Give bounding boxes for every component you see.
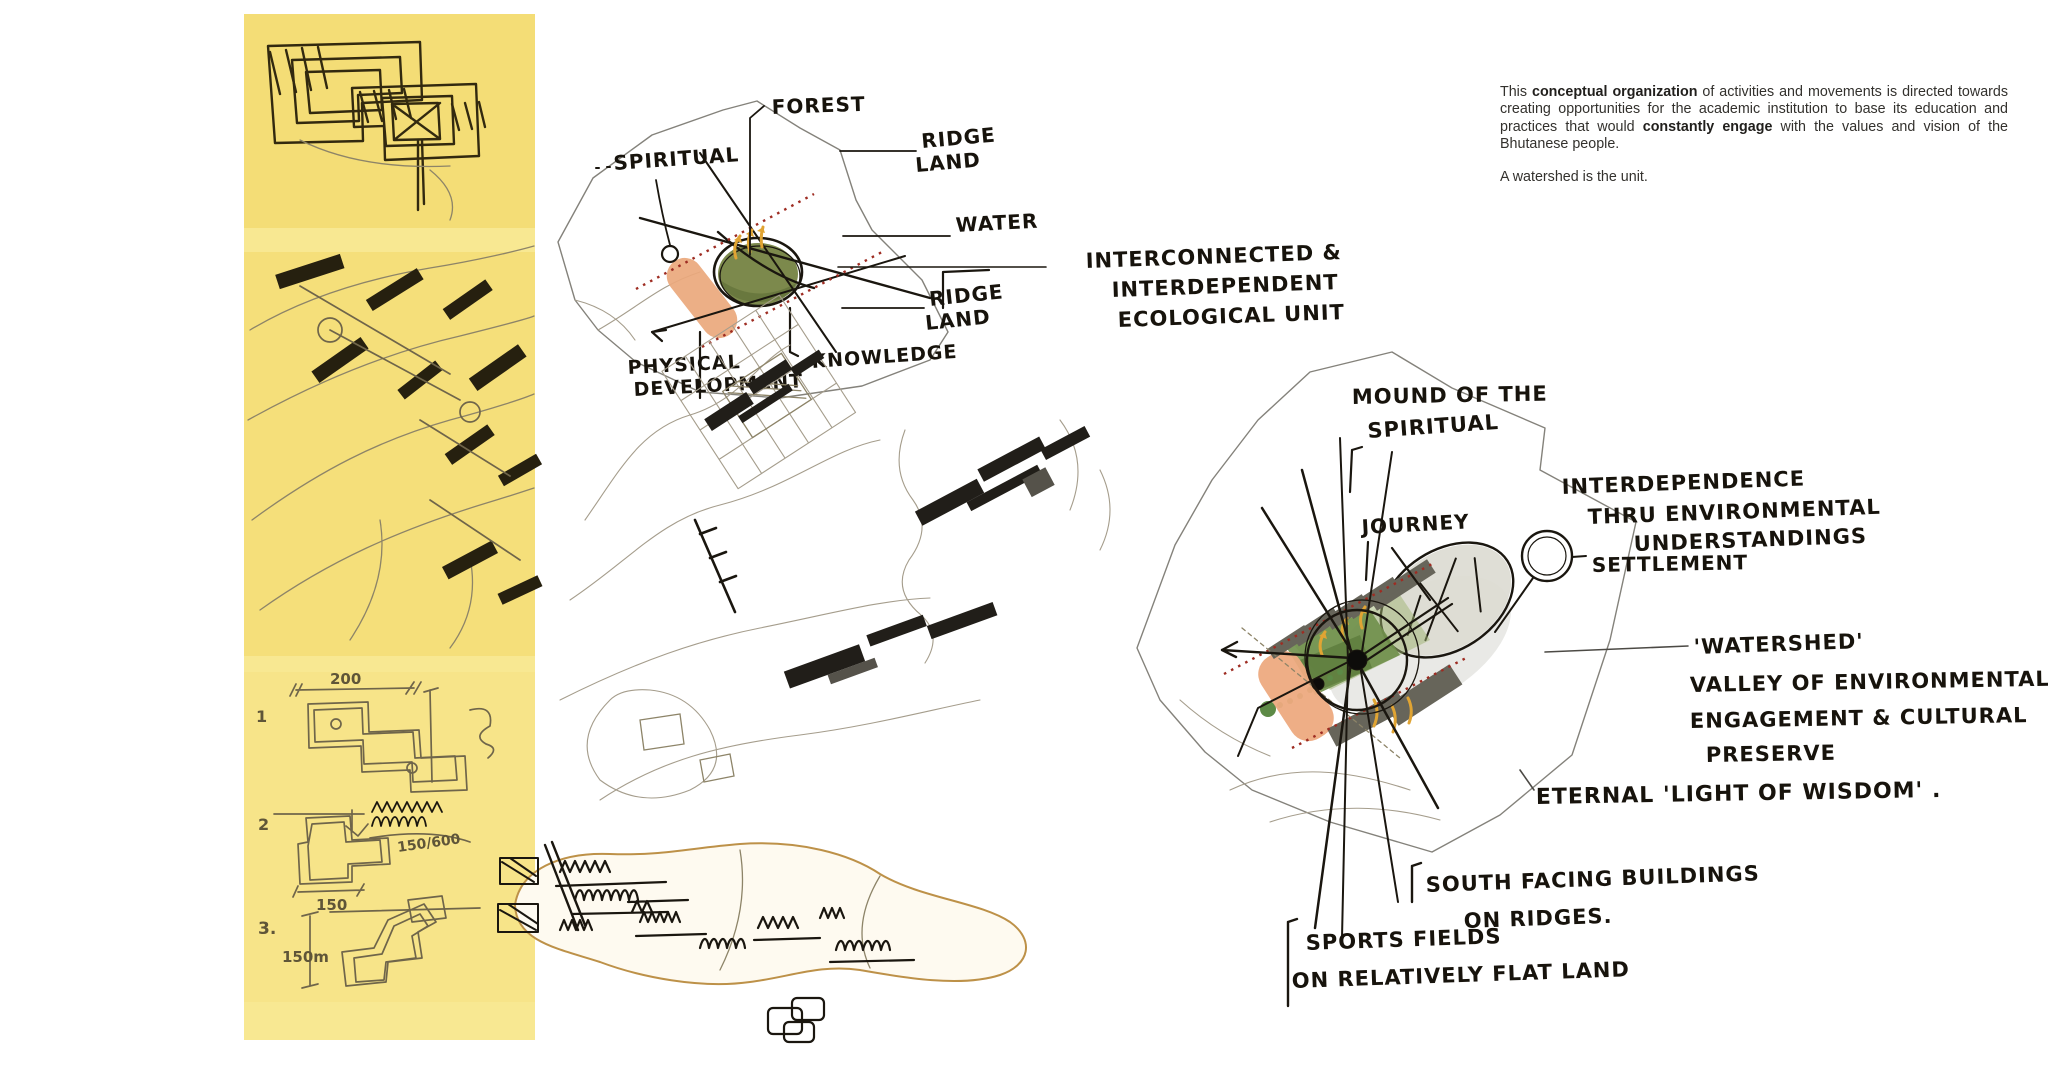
stair-path	[695, 520, 736, 612]
settlement-node	[1522, 531, 1572, 581]
label-south-facing-1: SOUTH FACING BUILDINGS	[1425, 861, 1760, 897]
label-eco-unit-3: ECOLOGICAL UNIT	[1117, 300, 1345, 332]
concept-statement: This conceptual organization of activiti…	[1500, 84, 2008, 201]
label-knowledge: KNOWLEDGE	[811, 341, 958, 373]
label-interdependence-2: THRU ENVIRONMENTAL	[1587, 495, 1881, 529]
linear-settlement-sketch	[498, 842, 1026, 1042]
label-eco-unit-1: INTERCONNECTED &	[1085, 240, 1342, 273]
watershed-valley-diagram: MOUND OF THE SPIRITUAL JOURNEY INTERDEPE…	[1137, 352, 2048, 1006]
footprint-doodle	[768, 998, 824, 1042]
label-interdependence-1: INTERDEPENDENCE	[1561, 467, 1805, 499]
label-eternal: ETERNAL 'LIGHT OF WISDOM' .	[1536, 778, 1942, 810]
dim-200: 200	[330, 670, 361, 688]
num-3: 3.	[258, 919, 276, 939]
label-watershed-2: VALLEY OF ENVIRONMENTAL	[1690, 667, 2048, 697]
concept-p1-seg1: This	[1500, 84, 1532, 100]
label-settlement: SETTLEMENT	[1592, 550, 1749, 577]
spiritual-leader-line	[656, 180, 670, 245]
spiritual-node	[662, 246, 678, 262]
forest-mound	[714, 238, 802, 306]
num-2: 2	[258, 815, 269, 834]
building-cluster-lower	[782, 591, 1000, 698]
label-spiritual: SPIRITUAL	[613, 142, 740, 175]
concept-p1-bold1: conceptual organization	[1532, 84, 1697, 100]
concept-paragraph: This conceptual organization of activiti…	[1500, 84, 2008, 154]
label-sports-fields-2: ON RELATIVELY FLAT LAND	[1291, 957, 1630, 993]
watershed-unit-diagram: FOREST SPIRITUAL RIDGE LAND WATER INTERC…	[558, 92, 1345, 401]
num-1: 1	[256, 707, 267, 726]
label-watershed-3: ENGAGEMENT & CULTURAL	[1690, 703, 2028, 733]
building-cluster-right	[911, 415, 1102, 548]
dim-150m: 150m	[282, 948, 329, 966]
label-forest: FOREST	[771, 92, 866, 119]
label-water: WATER	[955, 209, 1039, 237]
watershed-unit-statement: A watershed is the unit.	[1500, 169, 2008, 186]
label-sports-fields-1: SPORTS FIELDS	[1305, 924, 1502, 955]
label-watershed-1: 'WATERSHED'	[1693, 629, 1864, 659]
label-mound-2: SPIRITUAL	[1367, 410, 1500, 443]
label-mound-1: MOUND OF THE	[1352, 382, 1548, 409]
concept-board: 200 1 2 150/600 150 3. 150m	[0, 0, 2048, 1075]
concept-p1-bold2: constantly engage	[1643, 119, 1773, 135]
label-eco-unit-2: INTERDEPENDENT	[1111, 270, 1339, 302]
label-watershed-4: PRESERVE	[1706, 741, 1837, 767]
label-journey: JOURNEY	[1359, 509, 1470, 539]
yellow-trace-strip: 200 1 2 150/600 150 3. 150m	[244, 14, 542, 1040]
label-ridge-land-upper-2: LAND	[914, 147, 981, 177]
